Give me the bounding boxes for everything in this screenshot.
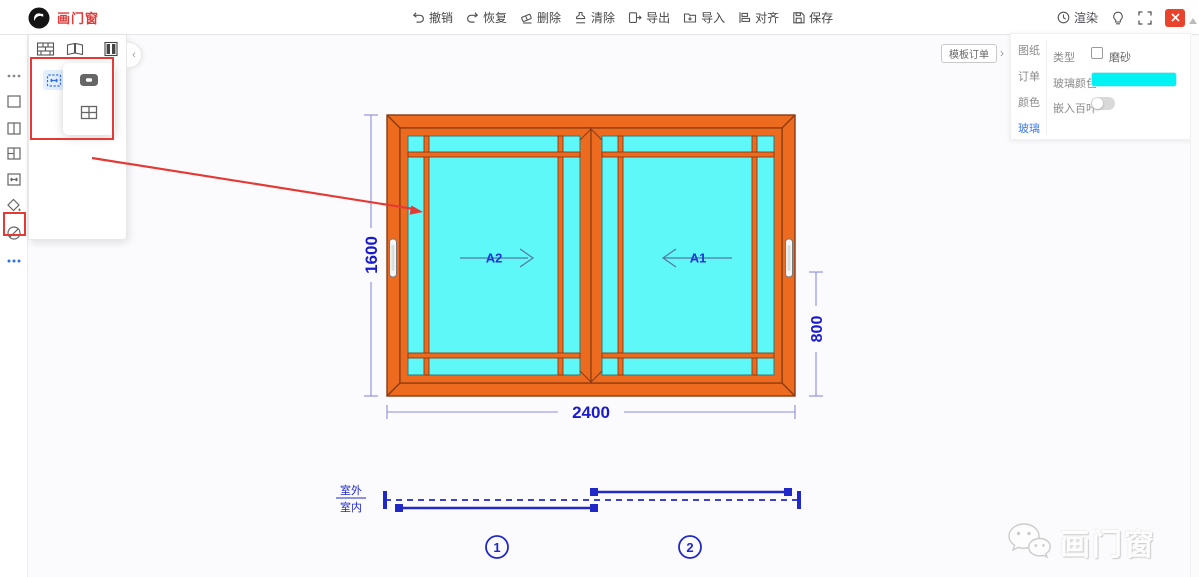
app-window: 画门窗 撤销 恢复 删除 清除 导出 (0, 0, 1199, 577)
canvas[interactable]: A2 A1 1600 800 2400 室外 室内 1 (0, 0, 1199, 577)
dim-height[interactable]: 1600 (362, 236, 381, 274)
dim-width[interactable]: 2400 (572, 403, 610, 422)
watermark-text: 画门窗 (1060, 520, 1156, 564)
sash-a1-label[interactable]: A1 (690, 251, 707, 266)
track-slot-2-number: 2 (686, 540, 693, 555)
track-diagram: 室外 室内 1 2 (336, 483, 801, 558)
sash-a2-label[interactable]: A2 (486, 251, 503, 266)
watermark: 画门窗 (1006, 520, 1156, 564)
outdoor-label: 室外 (340, 483, 362, 497)
indoor-label: 室内 (340, 500, 362, 514)
wechat-logo-icon (1006, 521, 1052, 563)
track-slot-1-number: 1 (493, 540, 500, 555)
annotation-arrow (92, 158, 423, 215)
dim-sub-height[interactable]: 800 (809, 316, 826, 343)
sash-a1-glass[interactable] (602, 136, 774, 375)
